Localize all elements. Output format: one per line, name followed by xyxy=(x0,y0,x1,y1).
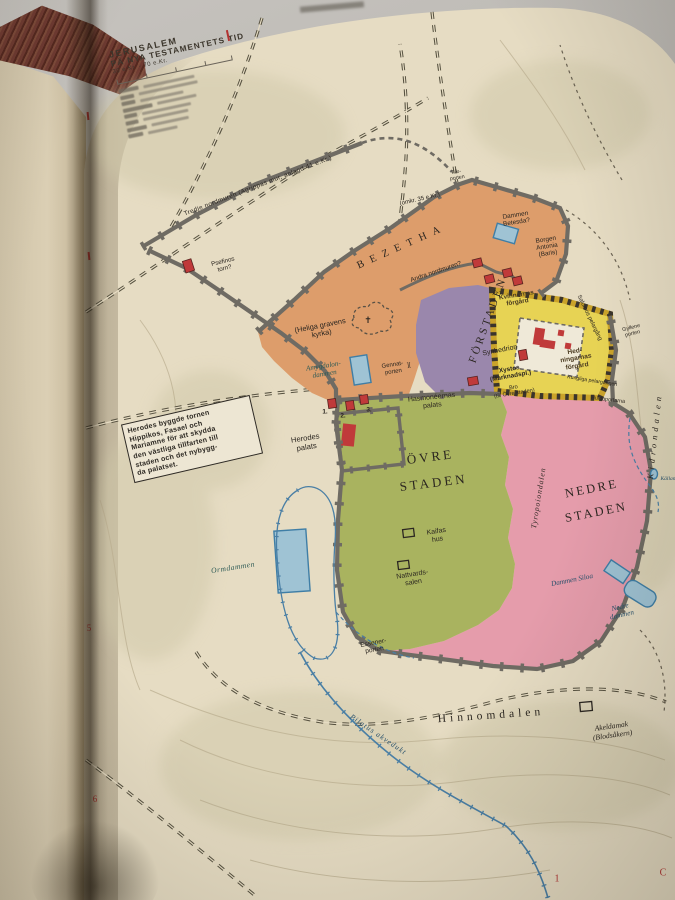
label-tyropoiondalen: Tyropoiondalen xyxy=(530,467,548,529)
running-head-smudge xyxy=(300,1,364,13)
red-margin-tick xyxy=(88,252,91,260)
label-kaifas-hus: Kaifas hus xyxy=(426,527,448,546)
label-tower-3: 3. xyxy=(366,406,371,413)
label-andra-nordmuren: Andra nordmuren? xyxy=(410,260,463,284)
label-heliga-gravens-kyrka: (Heliga gravens kyrka) xyxy=(294,317,348,343)
label-herodes-palats: Herodes palats xyxy=(290,432,321,453)
label-nedre-staden: NEDRE STADEN xyxy=(558,472,629,531)
book-photo-scene: rna klas söden ett visn på saren (Jara l… xyxy=(0,0,675,900)
label-kungliga-pelargangen: Kungliga pelargången xyxy=(567,375,618,389)
label-tredje-nordmuren: Tredje nordmuren (Agrippas mur, anlagd 4… xyxy=(183,154,333,217)
label-bro-ovre-staden: Bro (till Övre staden) xyxy=(493,382,535,401)
church-cross-icon: ✝ xyxy=(364,315,372,325)
label-tower-2: 2. xyxy=(340,412,345,419)
red-margin-tick xyxy=(87,112,90,120)
herodes-note-box: Herodes byggde tornen Hippikos, Fasael o… xyxy=(121,395,263,483)
grid-mark-c: C xyxy=(660,867,667,878)
map-label-layer: JERUSALEM PÅ NYA TESTAMENTETS TID 30 e.K… xyxy=(0,0,675,900)
label-hinnomdalen: Hinnomdalen xyxy=(437,706,544,726)
label-huldaportarna: Huldaportarna xyxy=(591,395,626,405)
grid-mark-5: 5 xyxy=(87,623,92,633)
label-essenerporten: Essener- porten xyxy=(360,637,389,656)
map-title-block: JERUSALEM PÅ NYA TESTAMENTETS TID 30 e.K… xyxy=(108,12,308,140)
grid-mark-6: 6 xyxy=(93,794,98,804)
label-ormdammen: Ormdammen xyxy=(211,560,256,575)
label-hasmoneernas-palats: Hasmonéernas palats xyxy=(408,392,457,413)
label-gennat-porten: Gennat- porten xyxy=(381,361,405,378)
label-pilatus-akvedukt: Pilatus akvedukt xyxy=(348,713,408,757)
label-kallan: Källan xyxy=(661,476,675,482)
label-tower-1: 1. xyxy=(322,408,327,415)
label-nedre-dammen: Nedre dammen xyxy=(607,600,634,621)
label-ovre-staden: ÖVRE STADEN xyxy=(395,440,469,500)
label-psefinos-torn: Psefinos torn? xyxy=(211,256,237,275)
label-bezetha: BEZETHA xyxy=(355,222,448,272)
label-synhedrion: Synhedrion xyxy=(482,344,518,358)
label-kidrondalen: Kidrondalen xyxy=(646,392,665,479)
label-salomos-pelargang: Salomos pelargång xyxy=(575,294,603,342)
label-xystos: Xystos (Marknadspl.) xyxy=(488,362,531,383)
label-borgen-antonia: Borgen Antonia (Baris) xyxy=(535,235,560,260)
label-hedningarnas-forgard: Hed- ningarnas förgård xyxy=(559,346,594,373)
label-amygdalondammen: Amygdalon- dammen xyxy=(305,359,342,380)
gate-icon: ][ xyxy=(407,362,411,369)
label-far-porten: Får- porten xyxy=(449,169,466,183)
label-omkr-35: (omkr. 35 e.Kr.) xyxy=(399,192,440,208)
label-akeldamak: Akeldamak (Blodsåkern) xyxy=(591,720,633,742)
label-gyllene-porten: Gyllene porten xyxy=(622,323,643,339)
label-dammen-betesda: Dammen Betesda? xyxy=(502,210,531,228)
grid-mark-1: 1 xyxy=(555,873,560,884)
label-nattvardssalen: Nattvards- salen xyxy=(396,569,430,590)
label-dammen-siloa: Dammen Siloa xyxy=(550,572,593,588)
